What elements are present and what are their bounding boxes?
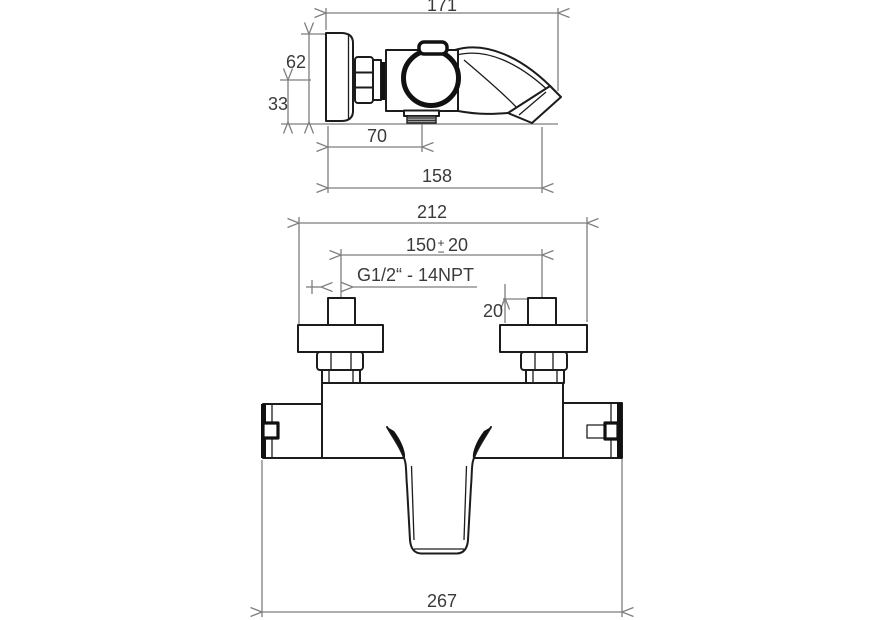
dim-label-267: 267 — [427, 591, 457, 611]
technical-drawing-page: 171 62 33 70 158 — [0, 0, 886, 620]
right-handle-cap — [563, 403, 622, 458]
dim-label-171: 171 — [427, 0, 457, 15]
dimension-axis-height-33: 33 — [268, 80, 311, 122]
tolerance-minus: − — [437, 245, 444, 259]
dim-label-150: 150 — [406, 235, 436, 255]
dim-label-20: 20 — [483, 301, 503, 321]
dimension-height-62: 62 — [286, 34, 325, 122]
dimension-outlet-offset-70: 70 — [328, 124, 422, 193]
dimension-connection-span: 150 + − 20 — [341, 235, 542, 259]
right-cap-detail — [605, 423, 618, 439]
left-escutcheon — [298, 325, 383, 352]
right-union-collar — [526, 370, 564, 383]
connector-cylinder — [373, 60, 381, 100]
dim-label-62: 62 — [286, 52, 306, 72]
left-union-collar — [322, 370, 360, 383]
dim-label-158: 158 — [422, 166, 452, 186]
thread-spec-label: G1/2“ - 14NPT — [357, 265, 474, 285]
faucet-dimension-drawing: 171 62 33 70 158 — [0, 0, 886, 620]
spout-top-inner-edge — [457, 53, 553, 95]
mounting-nut — [355, 57, 373, 103]
wall-flange — [326, 33, 353, 121]
thread-spec-annotation: G1/2“ - 14NPT — [306, 265, 477, 294]
left-cap-detail — [263, 423, 278, 438]
dimension-spout-reach-158: 158 — [328, 127, 542, 193]
spout-front — [387, 427, 491, 554]
knob-circle — [404, 51, 459, 106]
left-union-nut — [317, 352, 363, 370]
spout-side — [455, 47, 561, 123]
front-view: 212 150 + − 20 G1/2“ - 14NPT 20 — [261, 202, 622, 617]
spout-underside-edge — [458, 111, 508, 114]
right-inlet-union — [500, 249, 587, 383]
right-pipe-stub — [528, 298, 556, 325]
tolerance-value: 20 — [448, 235, 468, 255]
spout-fold-line — [464, 60, 517, 108]
dim-label-212: 212 — [417, 202, 447, 222]
spout-top-outer-edge — [455, 47, 556, 92]
spout-outlet-face — [508, 86, 561, 123]
side-view: 171 62 33 70 158 — [268, 0, 561, 193]
left-handle-cap — [261, 404, 322, 458]
dimension-thread-length-20: 20 — [483, 284, 527, 323]
dim-label-70: 70 — [367, 126, 387, 146]
right-escutcheon — [500, 325, 587, 352]
right-union-nut — [521, 352, 567, 370]
dim-label-33: 33 — [268, 94, 288, 114]
knob-tab — [419, 42, 447, 54]
shower-outlet-thread — [404, 111, 439, 124]
left-pipe-stub — [328, 298, 355, 325]
